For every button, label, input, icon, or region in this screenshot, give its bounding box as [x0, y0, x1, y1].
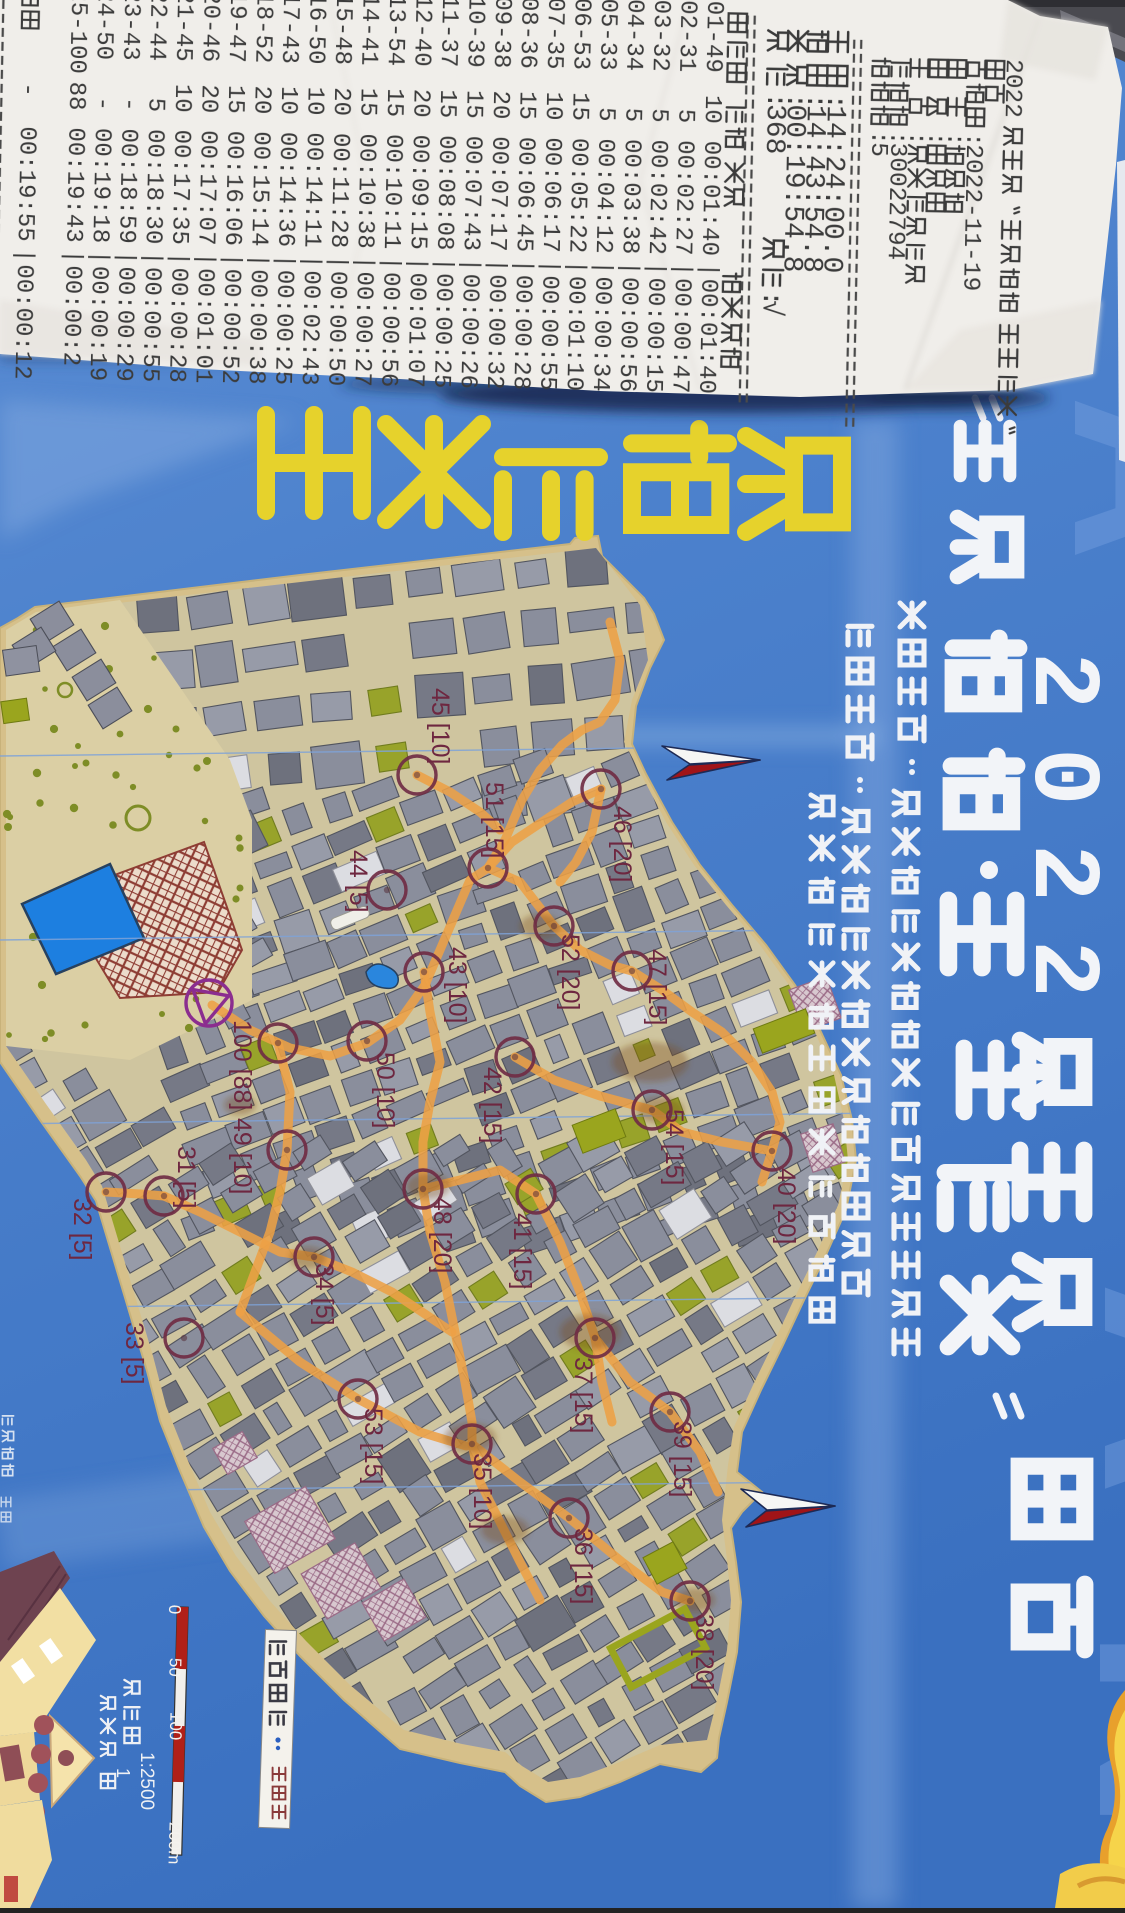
svg-text:11-37: 11-37: [434, 0, 463, 67]
svg-text:00:00:47: 00:00:47: [665, 278, 694, 394]
svg-text:37 [15]: 37 [15]: [569, 1357, 597, 1433]
svg-text:368: 368: [758, 104, 790, 155]
svg-text:00:00:32: 00:00:32: [480, 274, 509, 390]
svg-text:|: |: [376, 256, 403, 271]
svg-text:46 [20]: 46 [20]: [608, 806, 636, 882]
svg-text:50 [10]: 50 [10]: [371, 1052, 399, 1128]
svg-text:40 [20]: 40 [20]: [772, 1168, 800, 1244]
svg-text:32 [5]: 32 [5]: [68, 1198, 96, 1261]
svg-text:|: |: [403, 256, 430, 271]
svg-text:14-41: 14-41: [354, 0, 383, 66]
svg-text:10-39: 10-39: [460, 0, 489, 68]
svg-text:00:04:12: 00:04:12: [589, 138, 618, 254]
svg-text:-: -: [13, 82, 40, 97]
svg-text:|: |: [562, 260, 589, 275]
svg-text:|: |: [615, 261, 642, 276]
svg-text:12-40: 12-40: [407, 0, 436, 67]
svg-text:17-43: 17-43: [275, 0, 304, 64]
svg-text:00:09:15: 00:09:15: [403, 134, 432, 250]
svg-text:00:00:52: 00:00:52: [215, 268, 244, 384]
svg-text:2: 2: [1007, 652, 1116, 710]
svg-text:00:01:01: 00:01:01: [188, 268, 217, 384]
svg-text:√: √: [754, 300, 785, 317]
svg-text:15: 15: [512, 91, 540, 120]
svg-text:00:00:12: 00:00:12: [7, 264, 36, 380]
svg-text:15: 15: [565, 92, 593, 121]
svg-text:24-50: 24-50: [89, 0, 118, 60]
svg-text:03-32: 03-32: [646, 0, 675, 72]
svg-text:00:19:43: 00:19:43: [59, 127, 88, 243]
svg-text:35 [10]: 35 [10]: [468, 1453, 496, 1529]
svg-text:05-33: 05-33: [593, 0, 622, 71]
svg-text:38 [20]: 38 [20]: [690, 1614, 718, 1690]
svg-text:31 [5]: 31 [5]: [172, 1146, 200, 1209]
svg-text:00:00:19: 00:00:19: [82, 266, 111, 382]
svg-text:|: |: [694, 262, 721, 277]
svg-text:100 [88]: 100 [88]: [228, 1020, 256, 1110]
svg-text:15: 15: [380, 88, 408, 117]
svg-text:2022-11-19: 2022-11-19: [956, 144, 986, 292]
svg-text:18-52: 18-52: [248, 0, 277, 64]
svg-text:00:01:07: 00:01:07: [400, 272, 429, 388]
svg-text:|: |: [535, 259, 562, 274]
svg-text:09-38: 09-38: [487, 0, 516, 69]
svg-text:33 [5]: 33 [5]: [120, 1322, 148, 1385]
svg-text:10: 10: [698, 95, 726, 124]
svg-text:01-49: 01-49: [699, 0, 728, 73]
svg-text:|: |: [482, 258, 509, 273]
svg-text:07-35: 07-35: [540, 0, 569, 70]
svg-text:00:06:17: 00:06:17: [536, 137, 565, 253]
svg-text:00:00:55: 00:00:55: [135, 267, 164, 383]
svg-text:00:15:14: 00:15:14: [244, 131, 273, 247]
svg-text:00:00:28: 00:00:28: [506, 275, 535, 391]
svg-text:00:07:17: 00:07:17: [483, 136, 512, 252]
svg-text:-: -: [88, 96, 115, 111]
svg-text:53 [15]: 53 [15]: [359, 1408, 387, 1484]
svg-text:A: A: [1026, 395, 1125, 561]
svg-text:49 [10]: 49 [10]: [228, 1118, 256, 1194]
svg-text:15: 15: [221, 85, 249, 114]
svg-text:00:19:55: 00:19:55: [10, 126, 39, 242]
svg-text:5: 5: [141, 97, 168, 112]
svg-text:5: 5: [671, 108, 698, 123]
svg-text:39 [15]: 39 [15]: [668, 1421, 696, 1497]
svg-text:02-31: 02-31: [672, 0, 701, 72]
svg-text:5: 5: [618, 107, 645, 122]
svg-text:00:10:11: 00:10:11: [377, 134, 406, 250]
svg-text:00:00:27: 00:00:27: [347, 271, 376, 387]
svg-text:100: 100: [166, 1712, 186, 1741]
svg-text:|: |: [10, 248, 37, 263]
svg-text:10: 10: [168, 84, 196, 113]
svg-text:00:00:2: 00:00:2: [56, 265, 85, 366]
svg-text:25-100: 25-100: [62, 0, 91, 74]
svg-text:00:17:07: 00:17:07: [191, 130, 220, 246]
svg-text:54 [15]: 54 [15]: [660, 1109, 688, 1185]
svg-text:00:03:38: 00:03:38: [615, 139, 644, 255]
svg-text:20: 20: [406, 89, 434, 118]
svg-text:00:00:55: 00:00:55: [533, 275, 562, 391]
svg-text:|: |: [641, 261, 668, 276]
svg-text:15: 15: [353, 87, 381, 116]
svg-text:|: |: [668, 262, 695, 277]
svg-text:00:00:56: 00:00:56: [612, 277, 641, 393]
svg-text:00:00:56: 00:00:56: [374, 272, 403, 388]
svg-text:20: 20: [194, 84, 222, 113]
svg-text:|: |: [217, 252, 244, 267]
svg-text:00:01:40: 00:01:40: [695, 140, 724, 256]
svg-text:|: |: [111, 250, 138, 265]
svg-text:-: -: [115, 97, 142, 112]
svg-text:22-44: 22-44: [142, 0, 171, 61]
svg-text:1:2500: 1:2500: [136, 1752, 157, 1810]
svg-text:00:00:28: 00:00:28: [162, 267, 191, 383]
svg-text:00:19:18: 00:19:18: [85, 128, 114, 244]
svg-text:00:18:59: 00:18:59: [112, 128, 141, 244]
svg-text:21-45: 21-45: [169, 0, 198, 62]
svg-text:20-46: 20-46: [195, 0, 224, 62]
svg-text:00:16:06: 00:16:06: [218, 130, 247, 246]
svg-text:00:00:50: 00:00:50: [321, 271, 350, 387]
svg-text:04-34: 04-34: [619, 0, 648, 71]
svg-text:20: 20: [247, 85, 275, 114]
svg-text:5: 5: [645, 108, 672, 123]
svg-text:00:10:38: 00:10:38: [350, 133, 379, 249]
svg-text:|: |: [191, 252, 218, 267]
svg-text:43 [10]: 43 [10]: [443, 947, 471, 1023]
svg-text:30022794: 30022794: [881, 142, 910, 260]
svg-text:00:00:15: 00:00:15: [639, 277, 668, 393]
svg-text:|: |: [456, 257, 483, 272]
svg-text:|: |: [509, 259, 536, 274]
svg-text:10: 10: [539, 91, 567, 120]
svg-text:2022: 2022: [998, 59, 1026, 118]
svg-text:|: |: [85, 250, 112, 265]
svg-text:52 [20]: 52 [20]: [556, 934, 584, 1010]
svg-text:48 [20]: 48 [20]: [428, 1197, 456, 1273]
svg-text:|: |: [297, 254, 324, 269]
svg-text:45 [10]: 45 [10]: [426, 688, 454, 764]
svg-text:00:00:26: 00:00:26: [453, 273, 482, 389]
svg-text:5: 5: [864, 142, 891, 157]
svg-text:15: 15: [433, 89, 461, 118]
svg-text:|: |: [58, 249, 85, 264]
svg-text:00:05:22: 00:05:22: [562, 138, 591, 254]
svg-text:16-50: 16-50: [301, 0, 330, 65]
svg-text:00:18:30: 00:18:30: [138, 129, 167, 245]
svg-text:19-47: 19-47: [222, 0, 251, 63]
svg-text:10: 10: [274, 86, 302, 115]
svg-text:23-43: 23-43: [116, 0, 145, 61]
svg-text:00:08:08: 00:08:08: [430, 135, 459, 251]
svg-text:00:00:29: 00:00:29: [109, 266, 138, 382]
svg-text:2: 2: [1007, 844, 1116, 902]
svg-text:34 [5]: 34 [5]: [310, 1263, 338, 1326]
svg-text:5: 5: [592, 107, 619, 122]
svg-text:51 [15]: 51 [15]: [480, 782, 508, 858]
svg-text:|: |: [270, 254, 297, 269]
svg-text:00:07:43: 00:07:43: [456, 135, 485, 251]
svg-text:44 [5]: 44 [5]: [344, 850, 372, 913]
svg-text:42 [15]: 42 [15]: [478, 1067, 506, 1143]
svg-text:00:17:35: 00:17:35: [165, 129, 194, 245]
svg-text:00:02:27: 00:02:27: [668, 140, 697, 256]
svg-text:200m: 200m: [164, 1822, 184, 1865]
svg-text:36 [15]: 36 [15]: [569, 1528, 597, 1604]
svg-text:15-48: 15-48: [328, 0, 357, 65]
svg-text:00:02:42: 00:02:42: [642, 139, 671, 255]
svg-text:0: 0: [1007, 748, 1116, 806]
svg-text:00:00:25: 00:00:25: [268, 270, 297, 386]
svg-text:15: 15: [459, 90, 487, 119]
svg-text:06-53: 06-53: [566, 0, 595, 70]
svg-text:00:14:36: 00:14:36: [271, 132, 300, 248]
svg-text:00:01:40: 00:01:40: [692, 278, 721, 394]
svg-text:47 [15]: 47 [15]: [643, 949, 671, 1025]
svg-text:20: 20: [327, 87, 355, 116]
svg-text:00:00:38: 00:00:38: [241, 269, 270, 385]
svg-text:20: 20: [486, 90, 514, 119]
svg-text:|: |: [429, 257, 456, 272]
svg-text:|: |: [350, 255, 377, 270]
svg-text:0: 0: [165, 1605, 184, 1615]
svg-text:|: |: [138, 251, 165, 266]
svg-text:00:00:25: 00:00:25: [427, 273, 456, 389]
svg-text:88: 88: [62, 81, 90, 110]
svg-text:00:06:45: 00:06:45: [509, 137, 538, 253]
svg-text:00:01:10: 00:01:10: [559, 276, 588, 392]
svg-text:41 [15]: 41 [15]: [508, 1213, 536, 1289]
svg-text:|: |: [164, 251, 191, 266]
svg-text:13-54: 13-54: [381, 0, 410, 66]
svg-text:50: 50: [165, 1658, 184, 1677]
svg-text:08-36: 08-36: [513, 0, 542, 69]
svg-text:00:11:28: 00:11:28: [324, 133, 353, 249]
svg-text:00:02:43: 00:02:43: [294, 270, 323, 386]
svg-text:00:14:11: 00:14:11: [297, 132, 326, 248]
svg-text:10: 10: [300, 86, 328, 115]
svg-text:|: |: [323, 255, 350, 270]
svg-text:|: |: [244, 253, 271, 268]
svg-text:|: |: [588, 260, 615, 275]
svg-text:00:00:34: 00:00:34: [586, 276, 615, 392]
